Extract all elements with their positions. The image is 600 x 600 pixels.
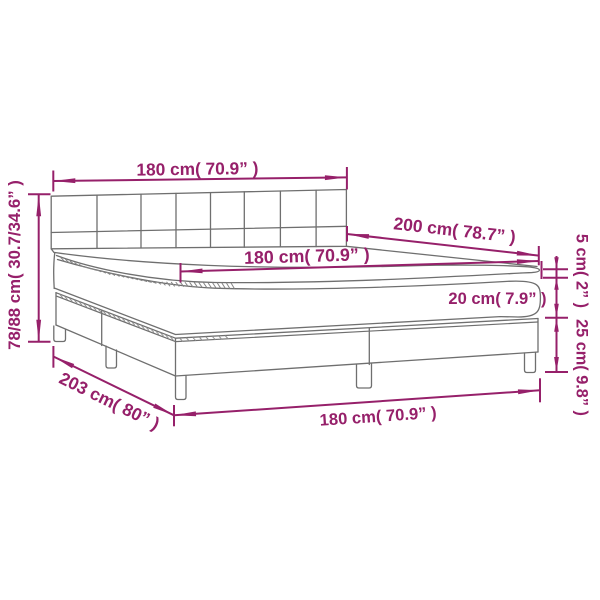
- svg-text:5 cm( 2” ): 5 cm( 2” ): [573, 234, 591, 308]
- svg-text:180 cm( 70.9” ): 180 cm( 70.9” ): [136, 158, 258, 180]
- svg-text:180 cm( 70.9” ): 180 cm( 70.9” ): [244, 244, 370, 268]
- svg-text:25 cm( 9.8” ): 25 cm( 9.8” ): [573, 319, 591, 416]
- svg-text:20 cm( 7.9” ): 20 cm( 7.9” ): [448, 290, 546, 308]
- svg-text:78/88 cm( 30.7/34.6” ): 78/88 cm( 30.7/34.6” ): [5, 180, 24, 350]
